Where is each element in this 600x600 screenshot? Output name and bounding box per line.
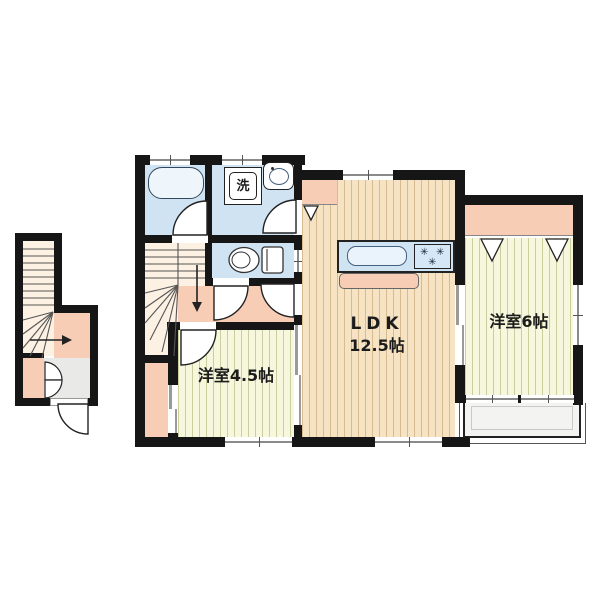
folding-door-mark (546, 239, 568, 261)
folding-door-mark (304, 206, 318, 220)
washroom-door-arc (263, 200, 296, 233)
entrance-closet-door-arc (45, 362, 62, 380)
folding-door-mark (481, 239, 503, 261)
exterior-stairs-lines (23, 249, 54, 358)
bedroom-45-label: 洋室4.5帖 (178, 366, 294, 386)
entrance-closet-door-arc (45, 380, 62, 398)
toilet-door-arc (214, 286, 248, 320)
bedroom-45-door-arc (181, 330, 216, 365)
floor-plan: 洗 ✳ ✳ ✳ (0, 0, 600, 600)
bedroom-6-label: 洋室6帖 (465, 312, 573, 332)
entrance-door-arc (58, 404, 88, 434)
bathroom-door-arc (173, 201, 207, 235)
ldk-label: LDK (322, 314, 432, 335)
stairs-direction-arrow (192, 265, 202, 312)
toilet-fixture (229, 247, 283, 273)
ldk-size-label: 12.5帖 (322, 336, 432, 356)
hall-ldk-door-arc (261, 284, 294, 317)
plan-linework (0, 0, 600, 600)
